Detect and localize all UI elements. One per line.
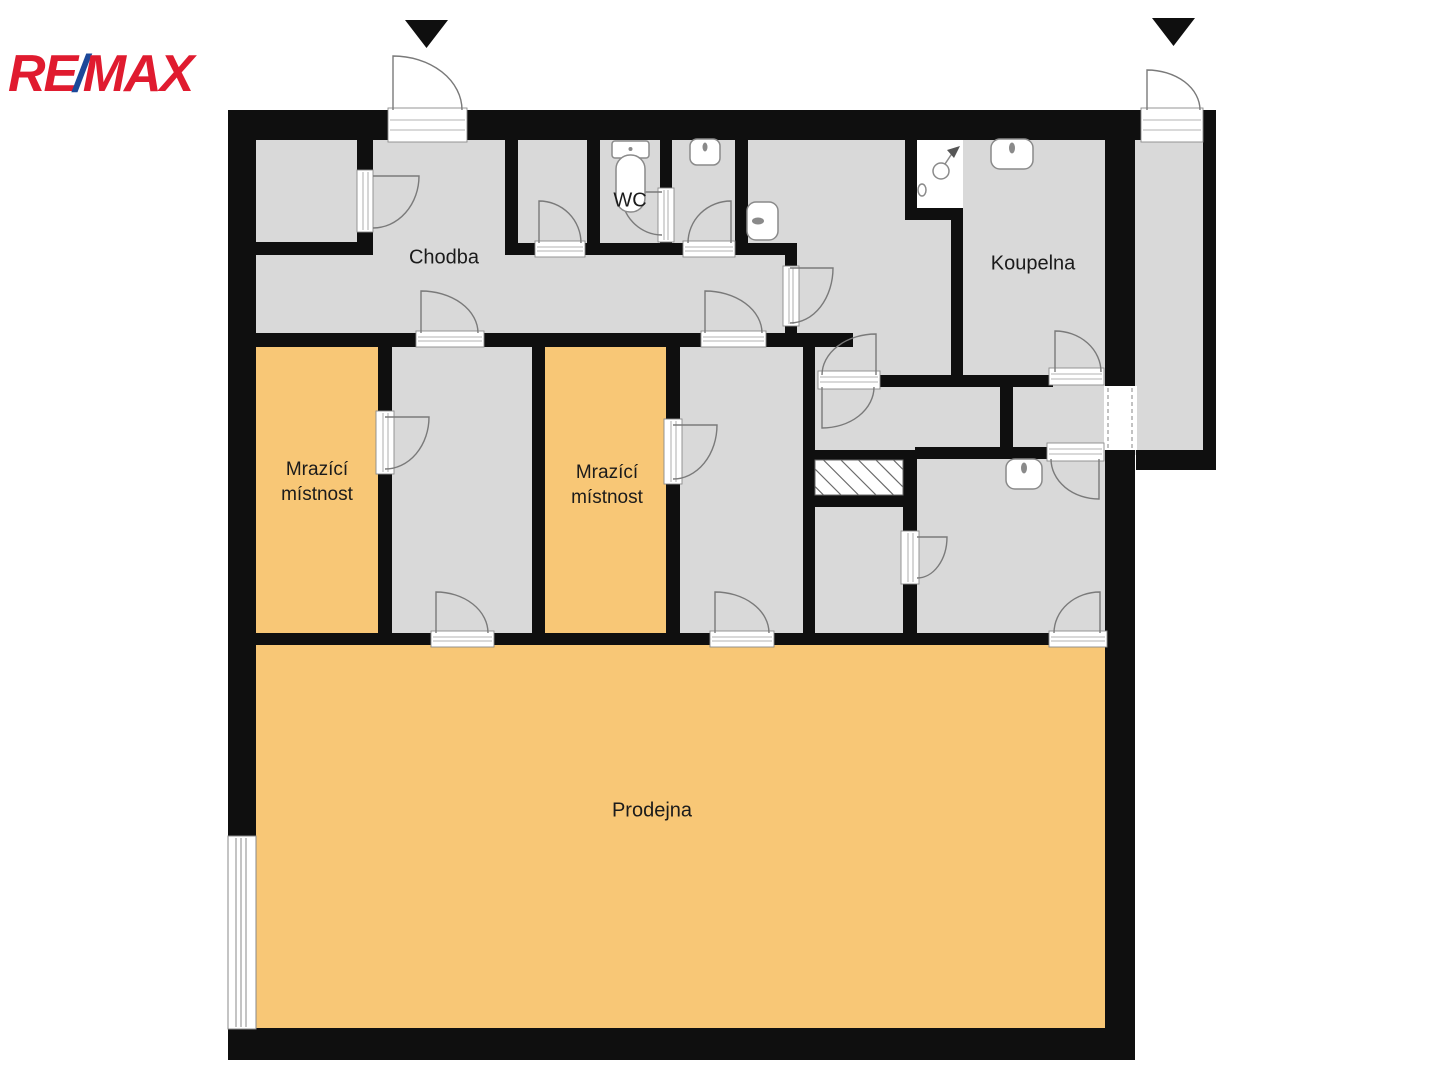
room-label-prodejna: Prodejna bbox=[612, 800, 692, 823]
side-corridor bbox=[1128, 135, 1206, 455]
entrance-arrow-icon-2 bbox=[1152, 18, 1195, 46]
shop-room-fill bbox=[256, 645, 1105, 1028]
room-label-mrazici-1-line1: Mrazící bbox=[281, 457, 353, 482]
window-left bbox=[228, 836, 256, 1029]
entrance-arrows bbox=[405, 18, 1195, 48]
entrance-door-2 bbox=[1147, 70, 1200, 110]
room-label-mrazici-2-line1: Mrazící bbox=[571, 460, 643, 485]
room-label-mrazici-1: Mrazící místnost bbox=[281, 457, 353, 507]
room-label-mrazici-2-line2: místnost bbox=[571, 485, 643, 510]
washbasin-icon-3 bbox=[1006, 459, 1042, 489]
room-label-mrazici-1-line2: místnost bbox=[281, 482, 353, 507]
washbasin-icon bbox=[690, 139, 720, 165]
urinal-icon bbox=[747, 202, 778, 240]
washbasin-icon-2 bbox=[991, 139, 1033, 169]
entrance-door-1 bbox=[393, 56, 462, 110]
room-label-wc: WC bbox=[613, 190, 646, 213]
entrance-arrow-icon-1 bbox=[405, 20, 448, 48]
floorplan-page: { "logo": { "re": "RE", "slash": "/", "m… bbox=[0, 0, 1440, 1080]
room-label-mrazici-2: Mrazící místnost bbox=[571, 460, 643, 510]
shower-tray bbox=[911, 135, 963, 213]
hatch-area bbox=[815, 460, 903, 495]
room-label-chodba: Chodba bbox=[409, 247, 479, 270]
room-label-koupelna: Koupelna bbox=[991, 253, 1076, 276]
floorplan-drawing bbox=[0, 0, 1440, 1080]
